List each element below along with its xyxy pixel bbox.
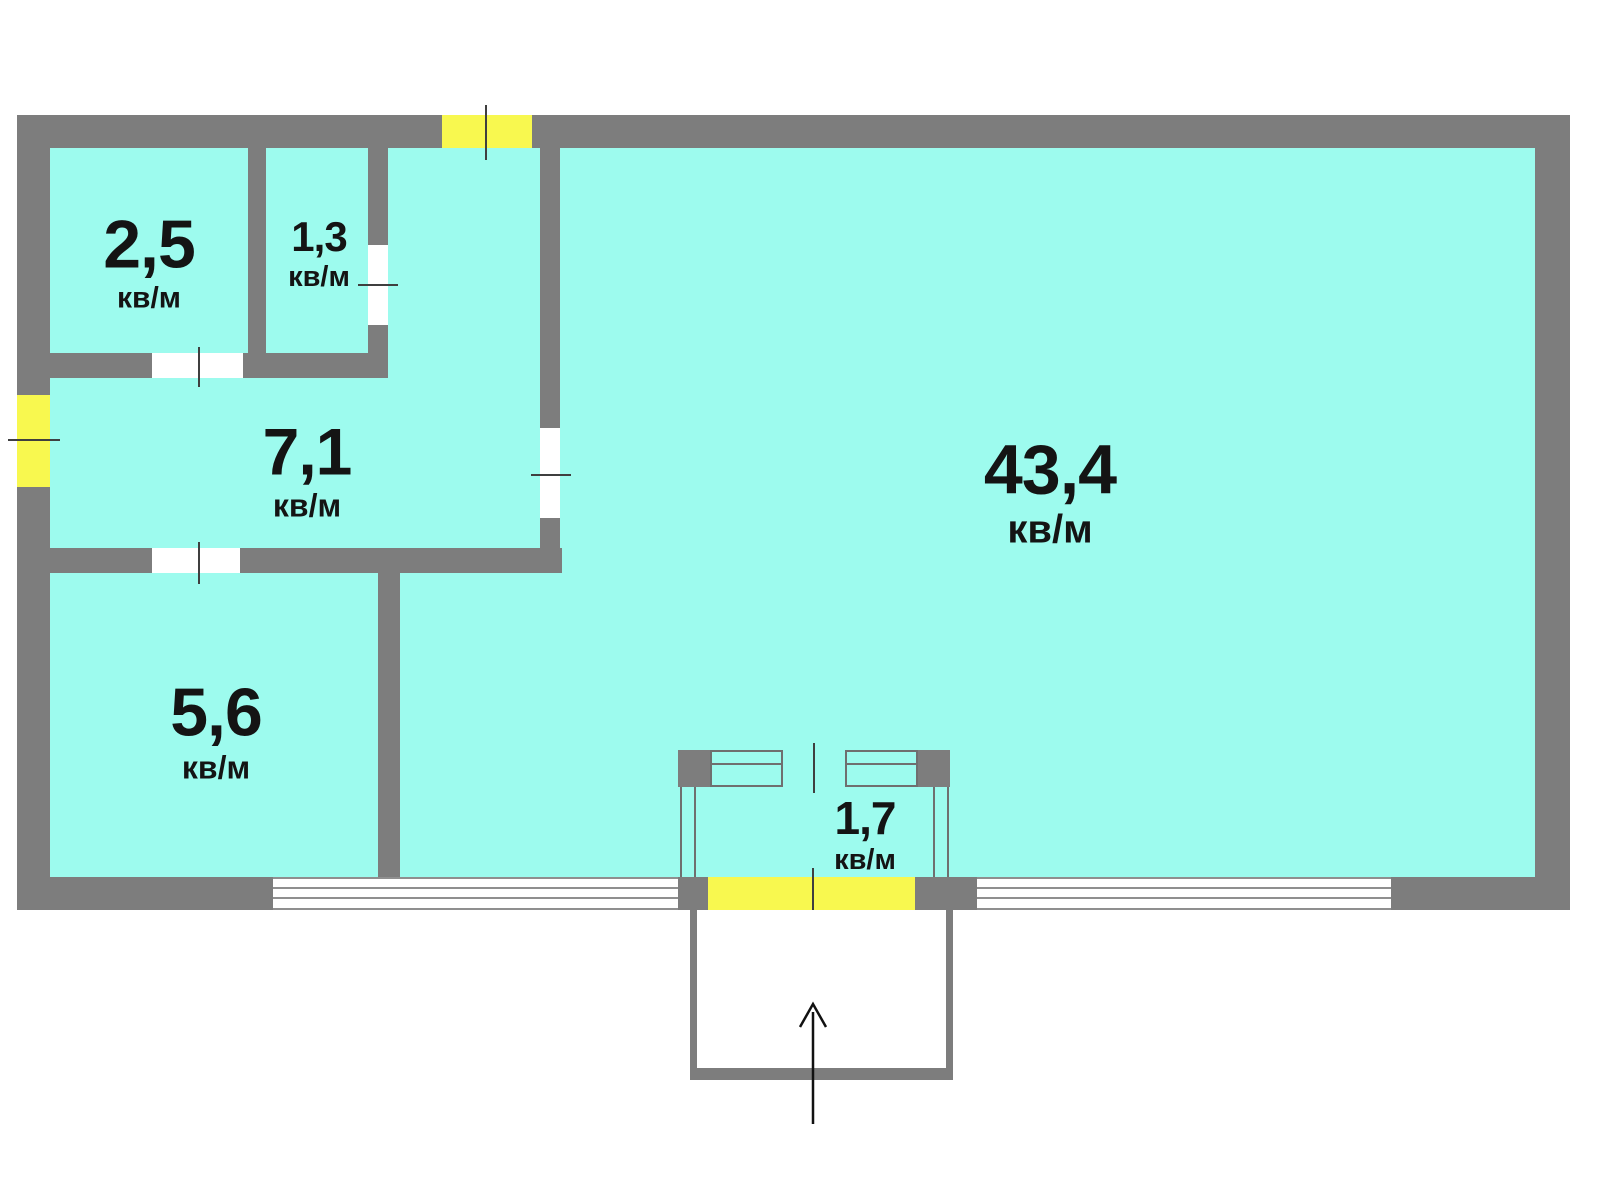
room-area-label-living: 43,4 кв/м xyxy=(984,435,1116,550)
wall-hall-kitchen-left xyxy=(50,548,152,573)
wall-left xyxy=(17,115,50,910)
wall-hall-kitchen-right xyxy=(240,548,562,573)
area-value: 1,3 xyxy=(291,216,346,258)
glazing-bar xyxy=(977,897,1391,899)
window-left-yellow xyxy=(17,395,50,487)
window-living xyxy=(977,877,1391,910)
balcony-pier-right xyxy=(918,750,950,787)
floor-plan: 2,5 кв/м 1,3 кв/м 7,1 кв/м 5,6 кв/м 43,4… xyxy=(0,0,1600,1200)
wall-bathroom-right-upper xyxy=(368,148,388,245)
glazing-bar xyxy=(977,887,1391,889)
balcony-sill-right xyxy=(845,750,918,787)
glazing-bar xyxy=(273,897,678,899)
wall-top xyxy=(17,115,1570,148)
sill-divider xyxy=(712,763,781,765)
area-unit: кв/м xyxy=(834,846,896,875)
area-value: 2,5 xyxy=(103,211,195,279)
room-area-label-storage: 2,5 кв/м xyxy=(103,211,195,314)
wall-below-bathroom xyxy=(243,353,388,378)
balcony-sill-left xyxy=(710,750,783,787)
wall-living-left-upper xyxy=(540,148,560,428)
wall-below-storage xyxy=(50,353,152,378)
wall-right xyxy=(1535,115,1570,910)
room-area-label-bathroom: 1,3 кв/м xyxy=(288,216,350,292)
area-unit: кв/м xyxy=(273,490,341,522)
glazing-bar xyxy=(273,887,678,889)
door-swing-mark-storage xyxy=(198,347,200,387)
balcony-pier-left xyxy=(678,750,710,787)
sill-divider xyxy=(847,763,916,765)
entrance-door xyxy=(442,115,532,148)
entrance-arrow-icon xyxy=(793,1000,833,1128)
door-swing-mark-living xyxy=(531,474,571,476)
door-swing-mark-balcony-opening xyxy=(813,743,815,793)
balcony-rail-line xyxy=(680,787,682,877)
wall-kitchen-living xyxy=(378,573,400,877)
window-kitchen xyxy=(273,877,678,910)
balcony-rail-line xyxy=(947,787,949,877)
doorway-living xyxy=(540,428,560,518)
wall-storage-bathroom xyxy=(248,148,266,378)
balcony-rail-line xyxy=(694,787,696,877)
wall-bottom-segment xyxy=(1391,877,1570,910)
area-unit: кв/м xyxy=(117,284,181,314)
area-unit: кв/м xyxy=(182,752,250,784)
door-swing-mark-kitchen xyxy=(198,542,200,584)
room-area-label-hallway: 7,1 кв/м xyxy=(263,419,352,522)
room-area-label-kitchen: 5,6 кв/м xyxy=(170,679,262,784)
window-mark-left xyxy=(8,439,60,441)
area-unit: кв/м xyxy=(1007,510,1092,550)
area-unit: кв/м xyxy=(288,263,350,292)
door-swing-mark-bathroom xyxy=(358,284,398,286)
wall-bottom-segment xyxy=(915,877,977,910)
wall-bathroom-right-lower xyxy=(368,325,388,378)
doorway-kitchen xyxy=(152,548,240,573)
wall-bottom-segment xyxy=(678,877,708,910)
area-value: 5,6 xyxy=(170,679,262,747)
wall-bottom-segment xyxy=(17,877,273,910)
balcony-rail-line xyxy=(933,787,935,877)
room-area-label-balcony: 1,7 кв/м xyxy=(834,795,896,875)
area-value: 43,4 xyxy=(984,435,1116,505)
area-value: 1,7 xyxy=(835,795,896,841)
area-value: 7,1 xyxy=(263,419,352,485)
door-swing-mark-entrance xyxy=(485,105,487,160)
